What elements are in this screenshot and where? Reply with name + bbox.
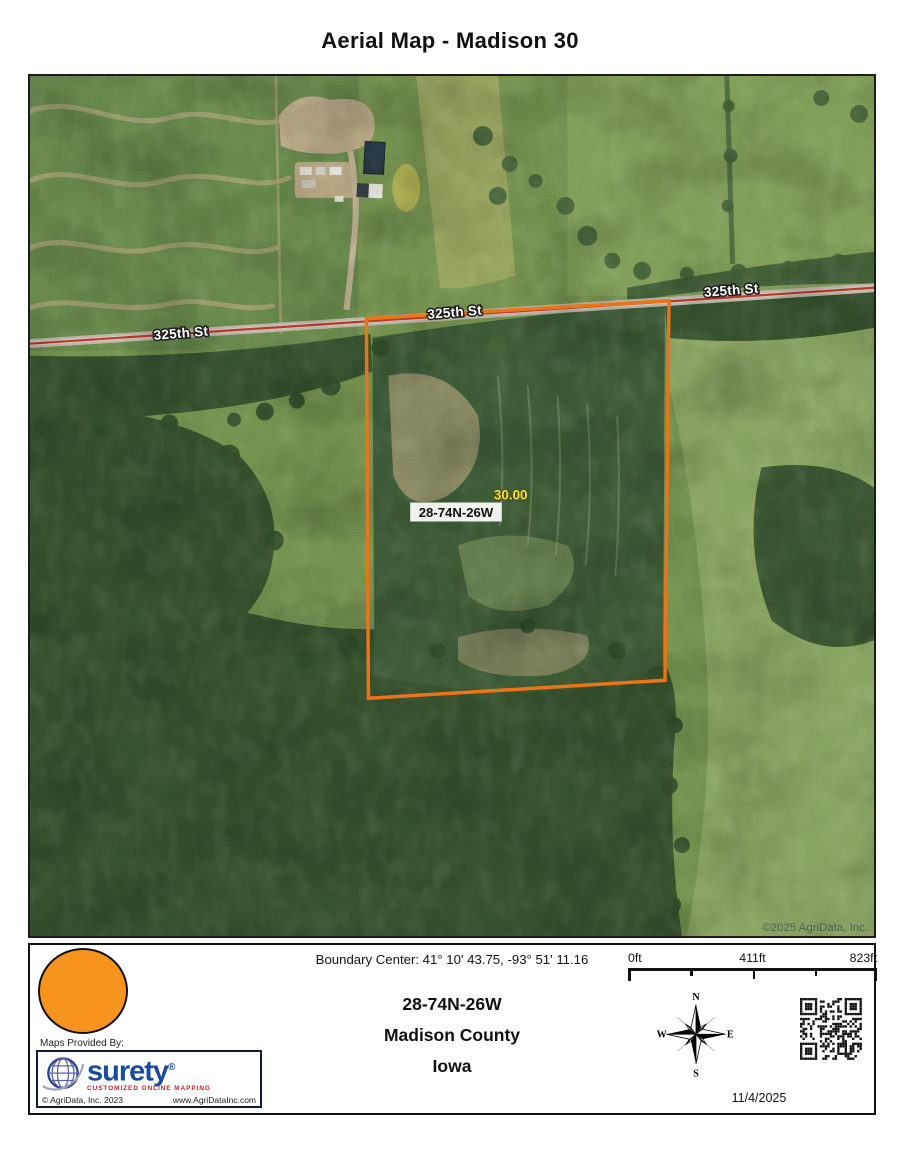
- scale-bar-ruler: [628, 968, 877, 982]
- compass-north-label: N: [692, 992, 700, 1003]
- qr-code: [800, 998, 862, 1060]
- scale-label-zero: 0ft: [628, 951, 642, 965]
- parcel-label-text: 28-74N-26W: [419, 505, 494, 520]
- compass-west-label: W: [657, 1029, 667, 1040]
- compass-rose: N E S W: [657, 991, 735, 1079]
- aerial-imagery: 325th St 325th St 325th St 28-74N-26W 30…: [30, 76, 874, 936]
- acreage-label: 30.00: [494, 487, 528, 502]
- map-frame: 325th St 325th St 325th St 28-74N-26W 30…: [28, 74, 876, 938]
- map-copyright: ©2025 AgriData, Inc.: [762, 922, 868, 934]
- county-name: Madison County: [180, 1020, 724, 1051]
- footer: Maps Provided By: surety® CUSTOMIZED ONL…: [28, 943, 876, 1115]
- scale-label-max: 823ft: [850, 951, 877, 965]
- state-name: Iowa: [180, 1051, 724, 1082]
- parcel-summary: 28-74N-26W Madison County Iowa: [180, 989, 724, 1082]
- map-date: 11/4/2025: [694, 1091, 824, 1105]
- agridata-copyright: © AgriData, Inc. 2023: [42, 1095, 123, 1105]
- boundary-legend-marker: [38, 948, 128, 1034]
- surety-globe-icon: [41, 1053, 85, 1097]
- parcel-label: 28-74N-26W: [410, 503, 502, 522]
- registered-mark: ®: [168, 1062, 175, 1073]
- parcel-id: 28-74N-26W: [180, 989, 724, 1020]
- scale-bar: 0ft 411ft 823ft: [628, 951, 877, 982]
- compass-east-label: E: [727, 1029, 734, 1040]
- maps-provided-caption: Maps Provided By:: [40, 1038, 124, 1049]
- agridata-website[interactable]: www.AgriDataInc.com: [173, 1095, 256, 1105]
- aerial-map-page: Aerial Map - Madison 30: [0, 0, 900, 1165]
- page-title: Aerial Map - Madison 30: [0, 28, 900, 54]
- compass-south-label: S: [693, 1068, 699, 1079]
- surety-tagline: CUSTOMIZED ONLINE MAPPING: [87, 1085, 211, 1092]
- scale-label-mid: 411ft: [739, 951, 765, 965]
